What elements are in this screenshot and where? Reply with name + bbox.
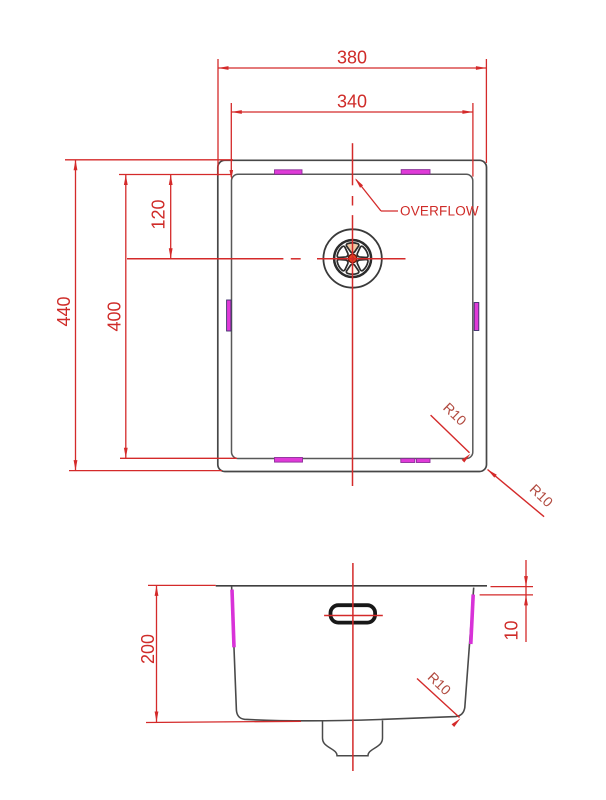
svg-text:OVERFLOW: OVERFLOW: [400, 204, 479, 219]
svg-text:10: 10: [502, 620, 522, 640]
svg-text:380: 380: [337, 48, 367, 68]
svg-text:200: 200: [138, 634, 158, 664]
svg-text:340: 340: [337, 92, 367, 112]
svg-text:120: 120: [149, 199, 169, 229]
svg-text:440: 440: [54, 296, 74, 326]
svg-text:400: 400: [105, 301, 125, 331]
